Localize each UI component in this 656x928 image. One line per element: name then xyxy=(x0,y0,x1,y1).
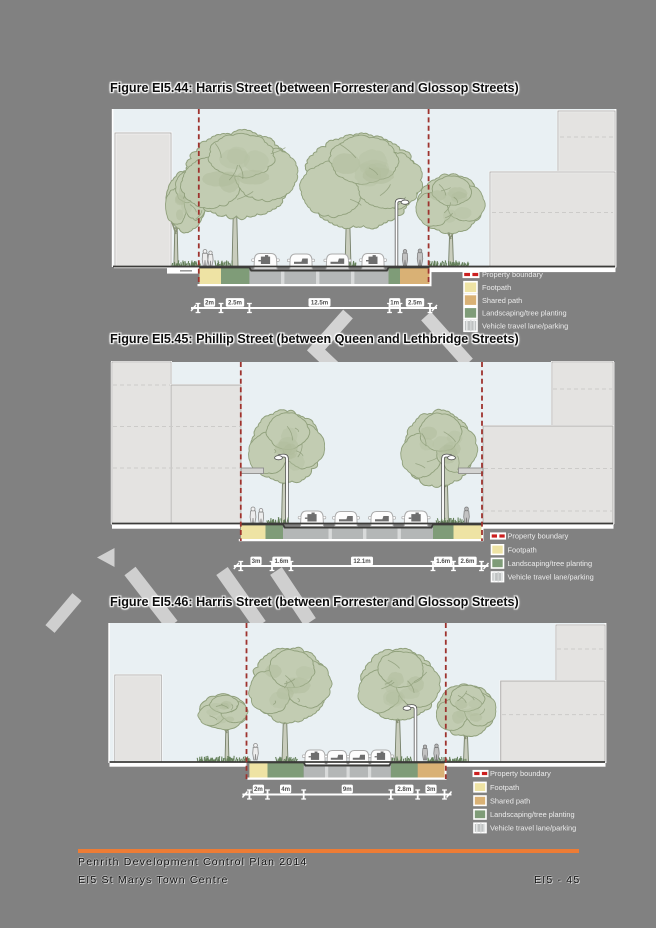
svg-text:3m: 3m xyxy=(427,786,436,793)
svg-text:Property boundary: Property boundary xyxy=(490,769,551,778)
svg-text:Footpath: Footpath xyxy=(508,545,537,554)
svg-text:2.8m: 2.8m xyxy=(397,786,411,793)
svg-text:Shared path: Shared path xyxy=(490,796,530,805)
svg-text:1.6m: 1.6m xyxy=(275,558,289,565)
svg-text:Footpath: Footpath xyxy=(490,783,519,792)
svg-text:Shared path: Shared path xyxy=(482,296,522,305)
svg-text:Landscaping/tree planting: Landscaping/tree planting xyxy=(482,309,567,318)
svg-text:1.6m: 1.6m xyxy=(436,558,450,565)
svg-text:2m: 2m xyxy=(254,786,263,793)
svg-text:12.1m: 12.1m xyxy=(353,558,371,565)
svg-text:Property boundary: Property boundary xyxy=(508,532,569,541)
svg-text:Vehicle travel lane/parking: Vehicle travel lane/parking xyxy=(482,321,568,330)
svg-text:2m: 2m xyxy=(205,300,214,307)
svg-text:3m: 3m xyxy=(252,558,261,565)
svg-text:Vehicle travel lane/parking: Vehicle travel lane/parking xyxy=(490,824,576,833)
svg-text:2.5m: 2.5m xyxy=(408,300,422,307)
svg-text:12.5m: 12.5m xyxy=(311,300,329,307)
svg-text:Footpath: Footpath xyxy=(482,283,511,292)
svg-text:Property boundary: Property boundary xyxy=(482,270,543,279)
svg-text:2.6m: 2.6m xyxy=(461,558,475,565)
svg-text:1m: 1m xyxy=(390,300,399,307)
svg-text:Landscaping/tree planting: Landscaping/tree planting xyxy=(490,810,575,819)
svg-text:Vehicle travel lane/parking: Vehicle travel lane/parking xyxy=(508,573,594,582)
svg-text:2.5m: 2.5m xyxy=(228,300,242,307)
svg-text:Landscaping/tree planting: Landscaping/tree planting xyxy=(508,559,593,568)
svg-text:4m: 4m xyxy=(281,786,290,793)
svg-text:9m: 9m xyxy=(343,786,352,793)
